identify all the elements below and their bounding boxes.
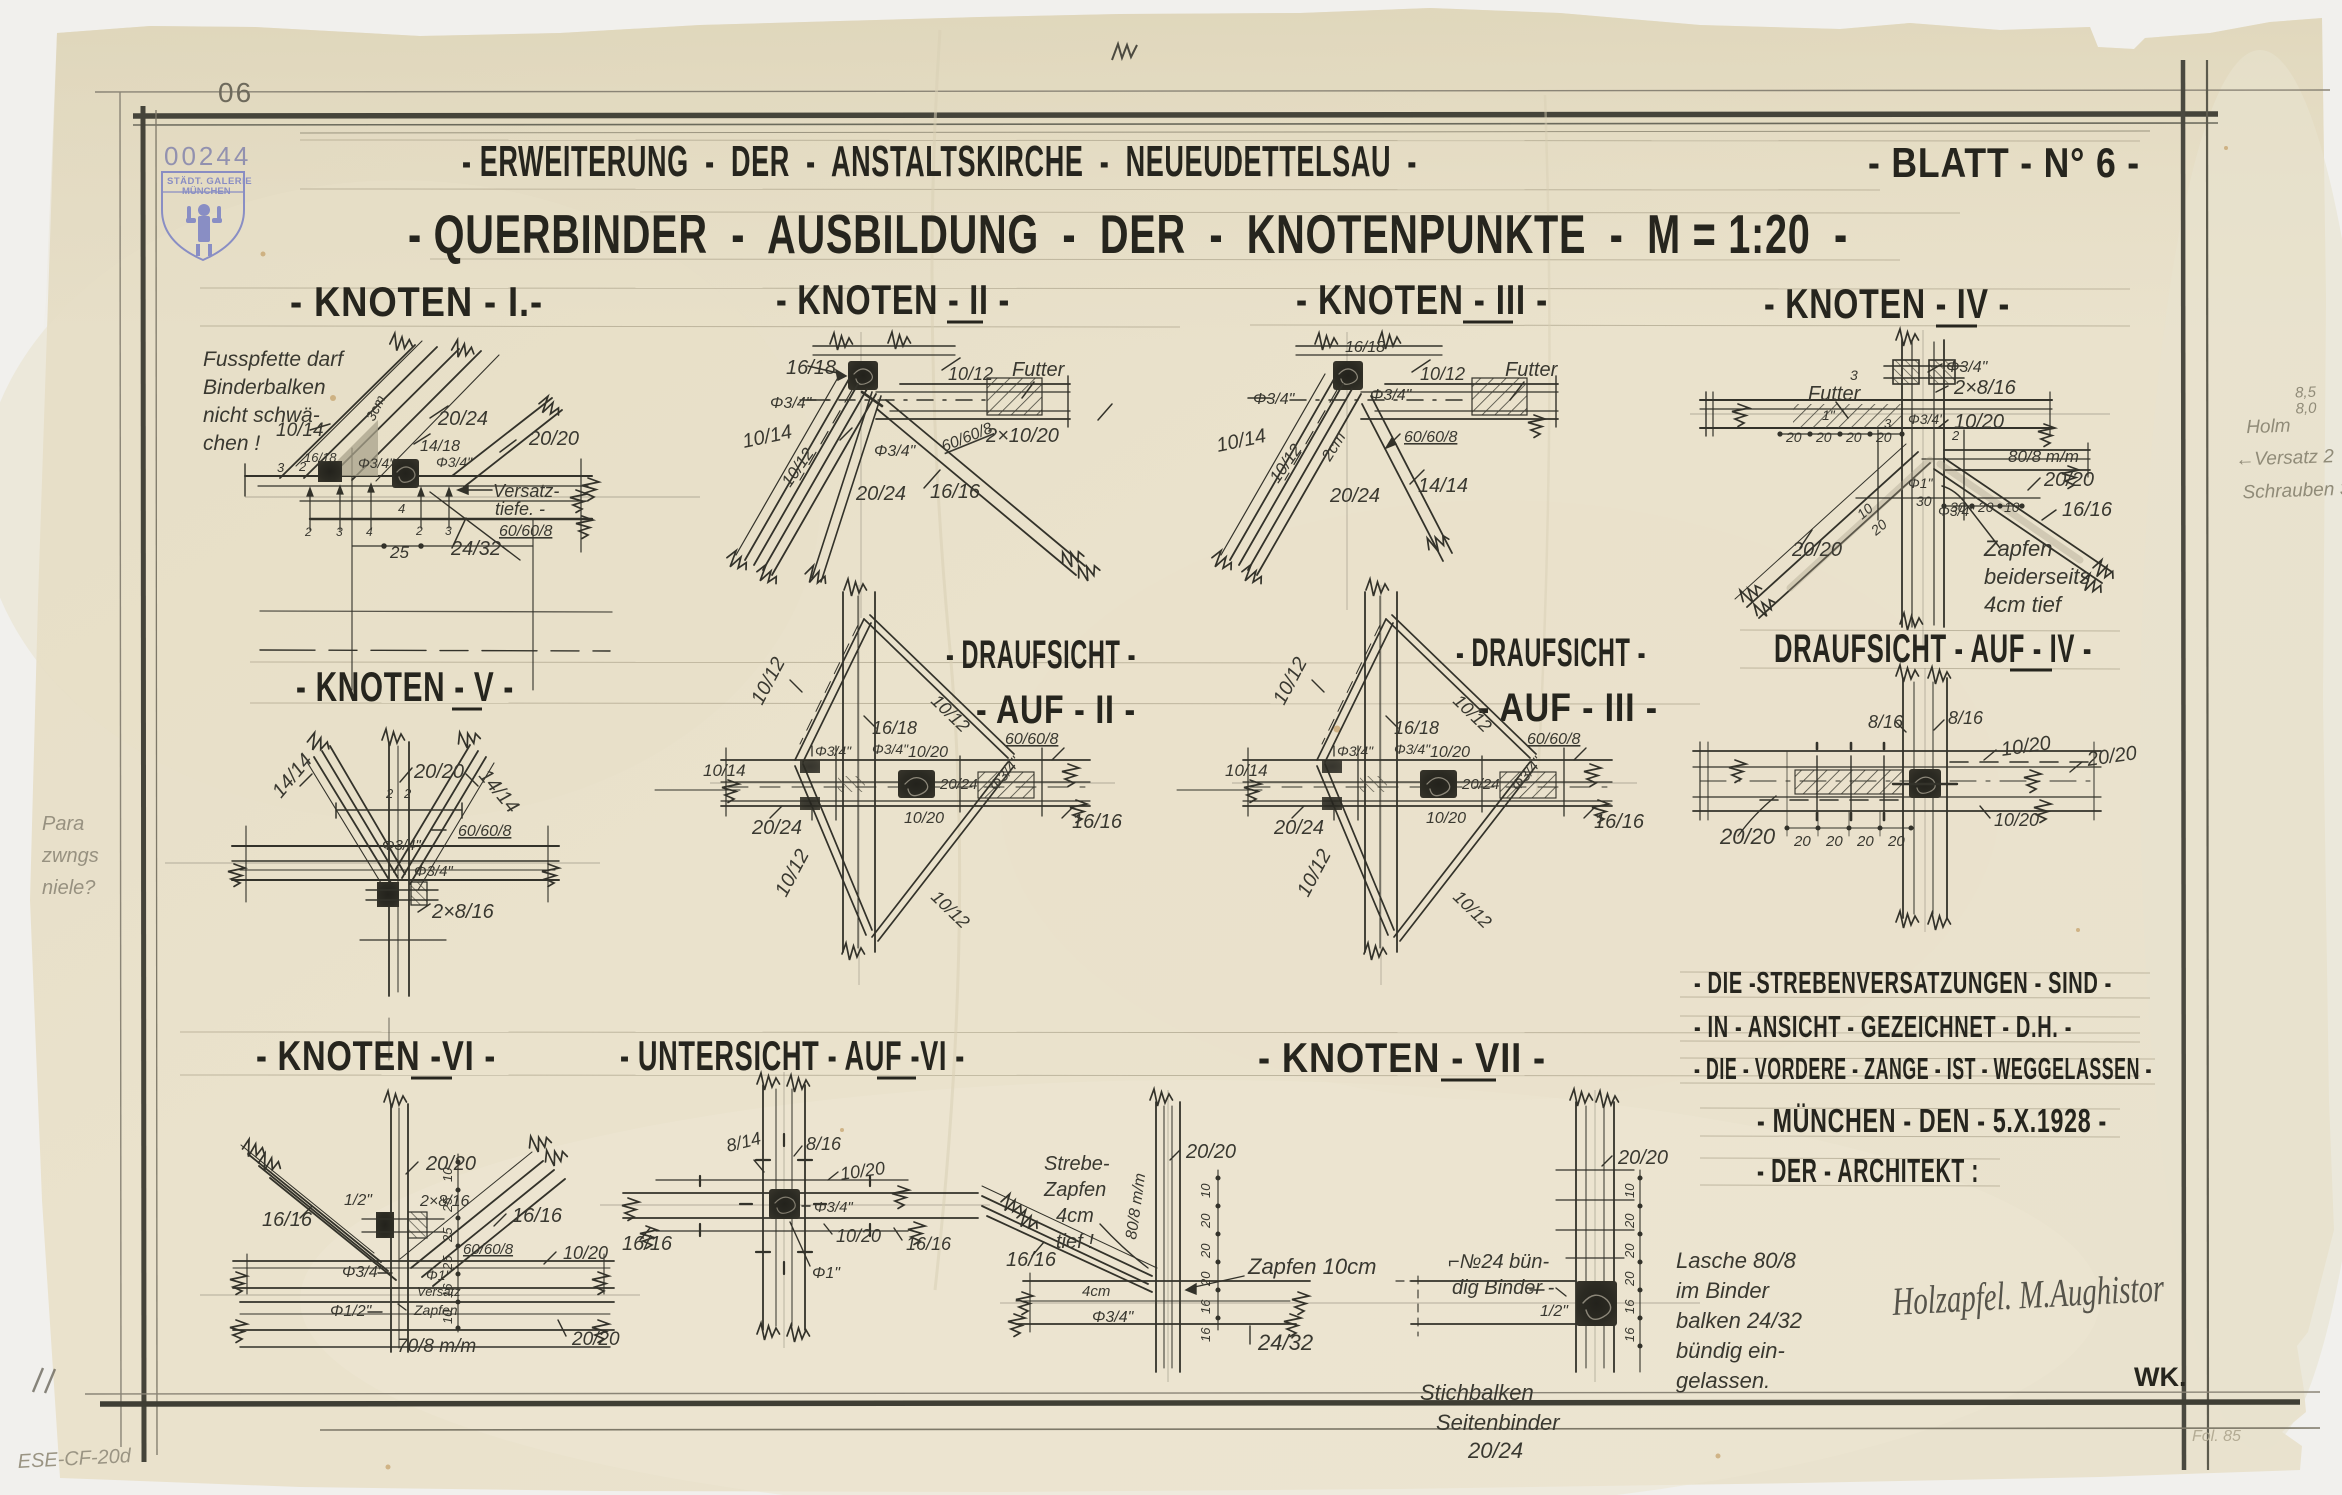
svg-text:4cm: 4cm — [1056, 1205, 1094, 1227]
svg-text:Φ1/2": Φ1/2" — [330, 1303, 373, 1320]
svg-text:10/14: 10/14 — [276, 420, 324, 441]
svg-text:10/12: 10/12 — [948, 364, 993, 384]
svg-text:20: 20 — [1622, 1213, 1637, 1229]
svg-text:gelassen.: gelassen. — [1676, 1368, 1770, 1393]
svg-text:16/16: 16/16 — [2062, 499, 2113, 521]
svg-text:Φ3/4": Φ3/4" — [815, 743, 852, 759]
svg-text:Stichbalken: Stichbalken — [1420, 1380, 1534, 1405]
svg-text:Φ3/4": Φ3/4" — [874, 443, 917, 460]
svg-text:- DRAUFSICHT -: - DRAUFSICHT - — [946, 633, 1136, 677]
svg-text:Zapfen: Zapfen — [1043, 1179, 1106, 1201]
svg-text:Futter: Futter — [1012, 359, 1066, 381]
svg-text:2×8/16: 2×8/16 — [1953, 377, 2017, 399]
svg-text:- DIE -STREBENVERSATZUNGEN - S: - DIE -STREBENVERSATZUNGEN - SIND - — [1694, 965, 2112, 1000]
svg-text:im Binder: im Binder — [1676, 1278, 1771, 1303]
svg-text:10/20: 10/20 — [908, 744, 948, 761]
svg-text:8/16: 8/16 — [806, 1134, 842, 1154]
svg-text:2×10/20: 2×10/20 — [985, 425, 1059, 447]
svg-text:10/14: 10/14 — [703, 761, 746, 780]
svg-text:niele?: niele? — [42, 877, 96, 899]
svg-text:chen !: chen ! — [203, 432, 260, 455]
svg-text:10/20: 10/20 — [836, 1226, 881, 1246]
svg-text:60/60/8: 60/60/8 — [499, 523, 552, 540]
svg-text:Φ3/4": Φ3/4" — [1092, 1309, 1135, 1326]
svg-text:10/20: 10/20 — [1954, 411, 2004, 433]
svg-text:20: 20 — [1825, 833, 1843, 850]
svg-text:tief !: tief ! — [1056, 1231, 1094, 1253]
svg-text:10/20: 10/20 — [563, 1243, 608, 1263]
svg-text:Versatz: Versatz — [417, 1284, 461, 1299]
svg-text:20/20: 20/20 — [1791, 539, 1842, 561]
svg-text:- QUERBINDER - AUSBILDUNG -: - QUERBINDER - AUSBILDUNG - DER - KNOTEN… — [408, 203, 1848, 265]
svg-text:Strebe-: Strebe- — [1044, 1153, 1110, 1175]
svg-text:16/16: 16/16 — [906, 1234, 952, 1254]
svg-text:20/24: 20/24 — [437, 408, 488, 430]
svg-text:20/24: 20/24 — [1329, 485, 1380, 507]
svg-text:3: 3 — [277, 460, 285, 475]
svg-text:2×8/16: 2×8/16 — [431, 901, 495, 923]
svg-text:Φ3/4": Φ3/4" — [358, 455, 395, 471]
svg-text:- KNOTEN - I.-: - KNOTEN - I.- — [290, 278, 543, 325]
svg-text:2: 2 — [403, 786, 412, 801]
svg-text:2×8/16: 2×8/16 — [419, 1193, 469, 1210]
svg-text:20: 20 — [1198, 1243, 1213, 1259]
svg-text:Φ1": Φ1" — [1908, 475, 1934, 491]
svg-text:10/12: 10/12 — [1420, 364, 1465, 384]
svg-text:20/20: 20/20 — [1185, 1141, 1236, 1163]
svg-text:Fusspfette darf: Fusspfette darf — [203, 348, 345, 371]
svg-text:balken 24/32: balken 24/32 — [1676, 1308, 1802, 1333]
svg-text:Binderbalken: Binderbalken — [203, 376, 326, 399]
svg-text:- KNOTEN - II -: - KNOTEN - II - — [776, 276, 1010, 323]
svg-text:←Versatz 2: ←Versatz 2 — [2235, 446, 2335, 470]
svg-text:20/20: 20/20 — [1719, 824, 1776, 849]
svg-text:14/18: 14/18 — [420, 438, 460, 455]
svg-text:1/2": 1/2" — [1540, 1303, 1569, 1320]
svg-text:20: 20 — [1887, 833, 1905, 850]
svg-text:16: 16 — [1622, 1327, 1637, 1342]
svg-text:1": 1" — [1822, 407, 1836, 423]
svg-text:10/20: 10/20 — [1994, 810, 2039, 830]
svg-text:20: 20 — [1815, 429, 1832, 445]
svg-text:- KNOTEN - IV -: - KNOTEN - IV - — [1764, 280, 2010, 327]
svg-text:WK.: WK. — [2134, 1362, 2186, 1392]
svg-text:Φ3/4": Φ3/4" — [1370, 387, 1413, 404]
svg-text:3: 3 — [1850, 367, 1858, 383]
svg-text:Φ3/4": Φ3/4" — [770, 395, 813, 412]
svg-text:16/18: 16/18 — [786, 357, 836, 379]
svg-text:Φ3/4": Φ3/4" — [814, 1199, 853, 1216]
svg-text:16/16: 16/16 — [622, 1233, 673, 1255]
svg-text:- KNOTEN -VI -: - KNOTEN -VI - — [256, 1032, 496, 1079]
svg-text:Lasche 80/8: Lasche 80/8 — [1676, 1248, 1797, 1273]
svg-text:Φ3/4": Φ3/4" — [1908, 411, 1945, 427]
svg-text:⌐№24 bün-: ⌐№24 bün- — [1448, 1251, 1550, 1273]
svg-text:20/24: 20/24 — [751, 817, 802, 839]
svg-text:2: 2 — [385, 786, 394, 801]
svg-text:zwngs: zwngs — [41, 845, 99, 867]
svg-text:Versatz-: Versatz- — [493, 481, 559, 501]
svg-text:8/16: 8/16 — [1868, 712, 1904, 732]
svg-text:20/24: 20/24 — [939, 776, 978, 793]
svg-text:DRAUFSICHT - AUF - IV -: DRAUFSICHT - AUF - IV - — [1774, 627, 2092, 671]
svg-text:Schrauben 3: Schrauben 3 — [2242, 479, 2342, 504]
svg-text:60/60/8: 60/60/8 — [463, 1241, 514, 1258]
svg-text:70/8 m/m: 70/8 m/m — [397, 1336, 476, 1357]
svg-text:8,5: 8,5 — [2295, 384, 2317, 402]
svg-text:20/20: 20/20 — [2043, 469, 2094, 491]
svg-text:4: 4 — [366, 525, 373, 539]
svg-text:- ERWEITERUNG - DER - ANST: - ERWEITERUNG - DER - ANSTALTSKIRCHE - N… — [462, 137, 1417, 186]
svg-text:16/16: 16/16 — [1006, 1249, 1057, 1271]
svg-text:30: 30 — [1916, 493, 1932, 509]
svg-text:20/20: 20/20 — [571, 1329, 620, 1350]
svg-text:- UNTERSICHT - AUF -VI -: - UNTERSICHT - AUF -VI - — [620, 1032, 965, 1079]
svg-text:16/16: 16/16 — [512, 1205, 563, 1227]
svg-text:Fol. 85: Fol. 85 — [2192, 1428, 2241, 1445]
svg-text:Φ3/4": Φ3/4" — [872, 741, 909, 757]
svg-text:dig Binder -: dig Binder - — [1452, 1277, 1555, 1299]
svg-text:- MÜNCHEN - DEN - 5.X.1928 -: - MÜNCHEN - DEN - 5.X.1928 - — [1757, 1102, 2107, 1139]
svg-text:4cm tief: 4cm tief — [1984, 592, 2064, 617]
svg-text:8,0: 8,0 — [2295, 400, 2317, 418]
svg-text:3: 3 — [336, 525, 343, 539]
svg-text:20/20: 20/20 — [528, 428, 579, 450]
svg-text:bündig ein-: bündig ein- — [1676, 1338, 1785, 1363]
svg-text:20/24: 20/24 — [855, 483, 906, 505]
svg-text:Φ3/4": Φ3/4" — [382, 837, 421, 854]
svg-text:tiefe. -: tiefe. - — [495, 499, 545, 519]
svg-text:Zapfen: Zapfen — [413, 1302, 458, 1318]
svg-text:1/2": 1/2" — [344, 1192, 373, 1209]
svg-text:2: 2 — [304, 525, 312, 539]
svg-text:- DER - ARCHITEKT :: - DER - ARCHITEKT : — [1757, 1152, 1979, 1189]
svg-text:20: 20 — [1198, 1213, 1213, 1229]
svg-text:20: 20 — [1977, 499, 1994, 515]
svg-text:20: 20 — [1785, 429, 1802, 445]
svg-text:16: 16 — [1622, 1299, 1637, 1314]
svg-text:14/14: 14/14 — [1418, 475, 1468, 497]
svg-text:16: 16 — [1198, 1299, 1213, 1314]
svg-text:3: 3 — [445, 524, 452, 538]
svg-text:20: 20 — [1845, 429, 1862, 445]
svg-text:16/18: 16/18 — [304, 450, 337, 465]
svg-text:8/16: 8/16 — [1948, 708, 1984, 728]
svg-text:- AUF - II -: - AUF - II - — [976, 688, 1136, 732]
svg-text:Zapfen 10cm: Zapfen 10cm — [1247, 1254, 1376, 1279]
svg-text:Φ1": Φ1" — [812, 1265, 841, 1282]
svg-text:- KNOTEN - III -: - KNOTEN - III - — [1296, 276, 1548, 323]
svg-text:20/20: 20/20 — [413, 761, 464, 783]
svg-text:- DRAUFSICHT -: - DRAUFSICHT - — [1456, 631, 1646, 675]
svg-text:16/18: 16/18 — [1345, 339, 1385, 356]
svg-text:60/60/8: 60/60/8 — [1005, 731, 1058, 748]
svg-text:10: 10 — [1198, 1183, 1213, 1198]
svg-text:2: 2 — [298, 459, 307, 474]
svg-text:24/32: 24/32 — [450, 538, 501, 560]
svg-text:- BLATT - N° 6 -: - BLATT - N° 6 - — [1868, 139, 2140, 186]
svg-text:16/16: 16/16 — [1072, 811, 1123, 833]
svg-text:00244: 00244 — [164, 141, 251, 171]
svg-text:- KNOTEN - VII -: - KNOTEN - VII - — [1258, 1034, 1546, 1081]
svg-text:- DIE - VORDERE - ZANGE - IST: - DIE - VORDERE - ZANGE - IST - WEGGELAS… — [1694, 1051, 2152, 1086]
svg-text:25: 25 — [440, 1227, 455, 1243]
svg-text:Para: Para — [42, 813, 84, 835]
svg-text:Φ3/4": Φ3/4" — [436, 454, 473, 470]
svg-text:beiderseits: beiderseits — [1984, 564, 2090, 589]
svg-text:Φ1": Φ1" — [426, 1267, 452, 1283]
svg-text:20: 20 — [1793, 833, 1811, 850]
svg-text:Seitenbinder: Seitenbinder — [1436, 1410, 1561, 1435]
svg-text:60/60/8: 60/60/8 — [1404, 429, 1457, 446]
svg-text:- KNOTEN - V -: - KNOTEN - V - — [296, 663, 514, 710]
svg-text:16: 16 — [1198, 1327, 1213, 1342]
svg-text:20: 20 — [1622, 1271, 1637, 1287]
svg-text:Φ3/4": Φ3/4" — [1946, 359, 1989, 376]
svg-text:2: 2 — [1951, 428, 1960, 443]
svg-text:10: 10 — [1622, 1183, 1637, 1198]
svg-text:24/32: 24/32 — [1257, 1330, 1313, 1355]
svg-text:06: 06 — [218, 77, 253, 108]
svg-text:20/24: 20/24 — [1467, 1438, 1523, 1463]
svg-text:2: 2 — [415, 524, 423, 538]
svg-text:Φ3/4": Φ3/4" — [414, 863, 453, 880]
svg-text:- IN - ANSICHT - GEZEICHNET -: - IN - ANSICHT - GEZEICHNET - D.H. - — [1694, 1009, 2072, 1044]
svg-text:MÜNCHEN: MÜNCHEN — [182, 186, 231, 197]
svg-text:4cm: 4cm — [1082, 1283, 1110, 1300]
svg-text:16/16: 16/16 — [930, 481, 981, 503]
svg-text:10/20: 10/20 — [904, 810, 944, 827]
svg-text:80/8 m/m: 80/8 m/m — [2008, 447, 2079, 466]
svg-text:60/60/8: 60/60/8 — [458, 823, 511, 840]
svg-text:16/18: 16/18 — [872, 718, 917, 738]
svg-text:20: 20 — [1622, 1243, 1637, 1259]
svg-text:20/20: 20/20 — [425, 1153, 476, 1175]
svg-text:20: 20 — [1856, 833, 1874, 850]
svg-text:25: 25 — [389, 543, 409, 562]
svg-text:20/20: 20/20 — [1617, 1147, 1668, 1169]
svg-text:3: 3 — [1884, 416, 1892, 431]
svg-text:Φ3/4": Φ3/4" — [1253, 391, 1296, 408]
svg-text:Holm: Holm — [2246, 416, 2291, 439]
svg-text:Futter: Futter — [1505, 359, 1559, 381]
svg-text:4: 4 — [398, 501, 405, 516]
svg-text:Futter: Futter — [1808, 383, 1862, 405]
svg-text:10: 10 — [2004, 499, 2020, 515]
svg-text:20: 20 — [1875, 429, 1892, 445]
